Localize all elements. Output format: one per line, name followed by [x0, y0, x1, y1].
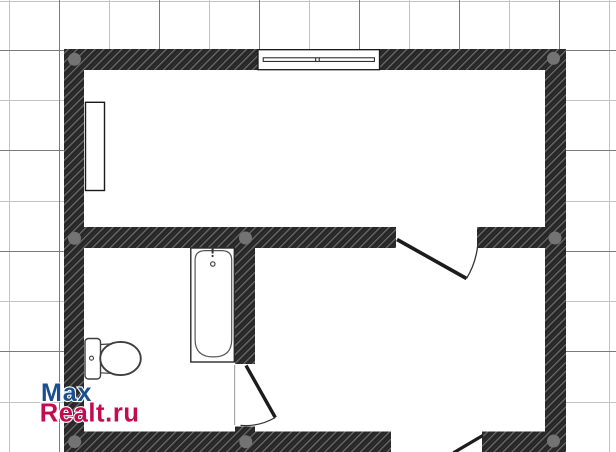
- svg-text:Realt.ru: Realt.ru: [40, 400, 140, 428]
